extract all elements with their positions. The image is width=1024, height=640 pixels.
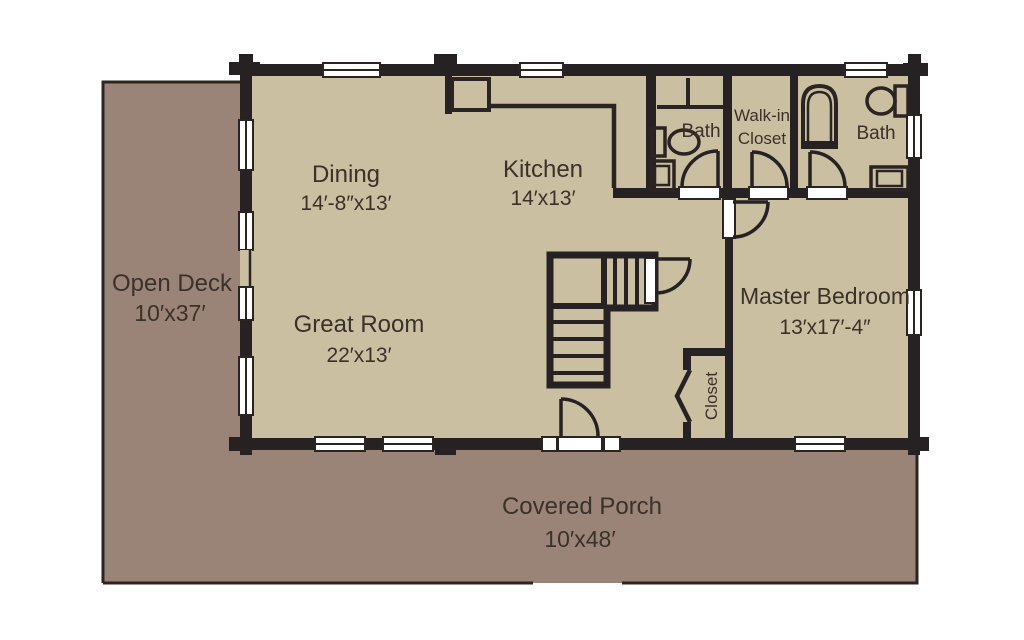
- log-end-bottom-mid: [435, 449, 456, 455]
- bath-right-label: Bath: [856, 123, 895, 144]
- wall-bath-walkin: [723, 64, 732, 194]
- sidelight-right: [604, 437, 620, 451]
- bathtub-base: [801, 141, 838, 149]
- walkin-closet-label-2: Closet: [738, 129, 786, 148]
- log-end-bottom-right-h: [920, 437, 929, 451]
- window-deck-4: [239, 357, 253, 415]
- open-deck-dims: 10′x37′: [134, 300, 205, 326]
- window-deck-1: [239, 120, 253, 170]
- wall-closet-left-upper: [683, 348, 691, 370]
- open-deck-label: Open Deck: [112, 270, 233, 297]
- window-bath-top: [845, 63, 887, 77]
- window-bedroom-bottom: [795, 437, 845, 451]
- floor-plan-page: Open Deck 10′x37′ Covered Porch 10′x48′ …: [0, 0, 1024, 640]
- wall-closet-left-lower: [683, 422, 691, 440]
- master-bedroom-dims: 13′x17′-4″: [779, 316, 871, 339]
- window-deck-3: [239, 287, 253, 320]
- covered-porch-label: Covered Porch: [502, 493, 662, 520]
- kitchen-label: Kitchen: [503, 156, 583, 183]
- covered-porch-dims: 10′x48′: [544, 526, 615, 552]
- master-bedroom-label: Master Bedroom: [740, 283, 910, 309]
- window-dining-top: [323, 63, 380, 77]
- deck-slider-panel: [240, 250, 252, 287]
- window-greatroom-bottom-2: [383, 437, 433, 451]
- floor-plan-drawing: Open Deck 10′x37′ Covered Porch 10′x48′ …: [0, 0, 1024, 640]
- log-end-top-right-h: [903, 63, 928, 76]
- wall-walkin-bath2: [790, 64, 798, 194]
- sidelight-left: [542, 437, 557, 451]
- log-end-top-left-h: [229, 62, 260, 75]
- kitchen-dims: 14′x13′: [510, 187, 575, 210]
- window-deck-2: [239, 212, 253, 250]
- walkin-closet-label-1: Walk-in: [734, 106, 790, 125]
- dining-label: Dining: [312, 161, 380, 188]
- bath-left-label: Bath: [681, 121, 720, 142]
- log-end-bottom-left-h: [229, 437, 241, 451]
- refrigerator: [452, 79, 489, 110]
- dining-dims: 14′-8″x13′: [300, 192, 391, 215]
- great-room-dims: 22′x13′: [326, 344, 391, 367]
- great-room-label: Great Room: [294, 311, 425, 338]
- closet-label: Closet: [702, 372, 721, 420]
- log-end-top-mid: [434, 54, 457, 66]
- log-end-bottom-right-v: [908, 449, 920, 455]
- window-bath-right: [907, 115, 921, 158]
- window-kitchen-top: [520, 63, 563, 77]
- log-end-bottom-left-v: [240, 449, 252, 455]
- window-greatroom-bottom-1: [315, 437, 365, 451]
